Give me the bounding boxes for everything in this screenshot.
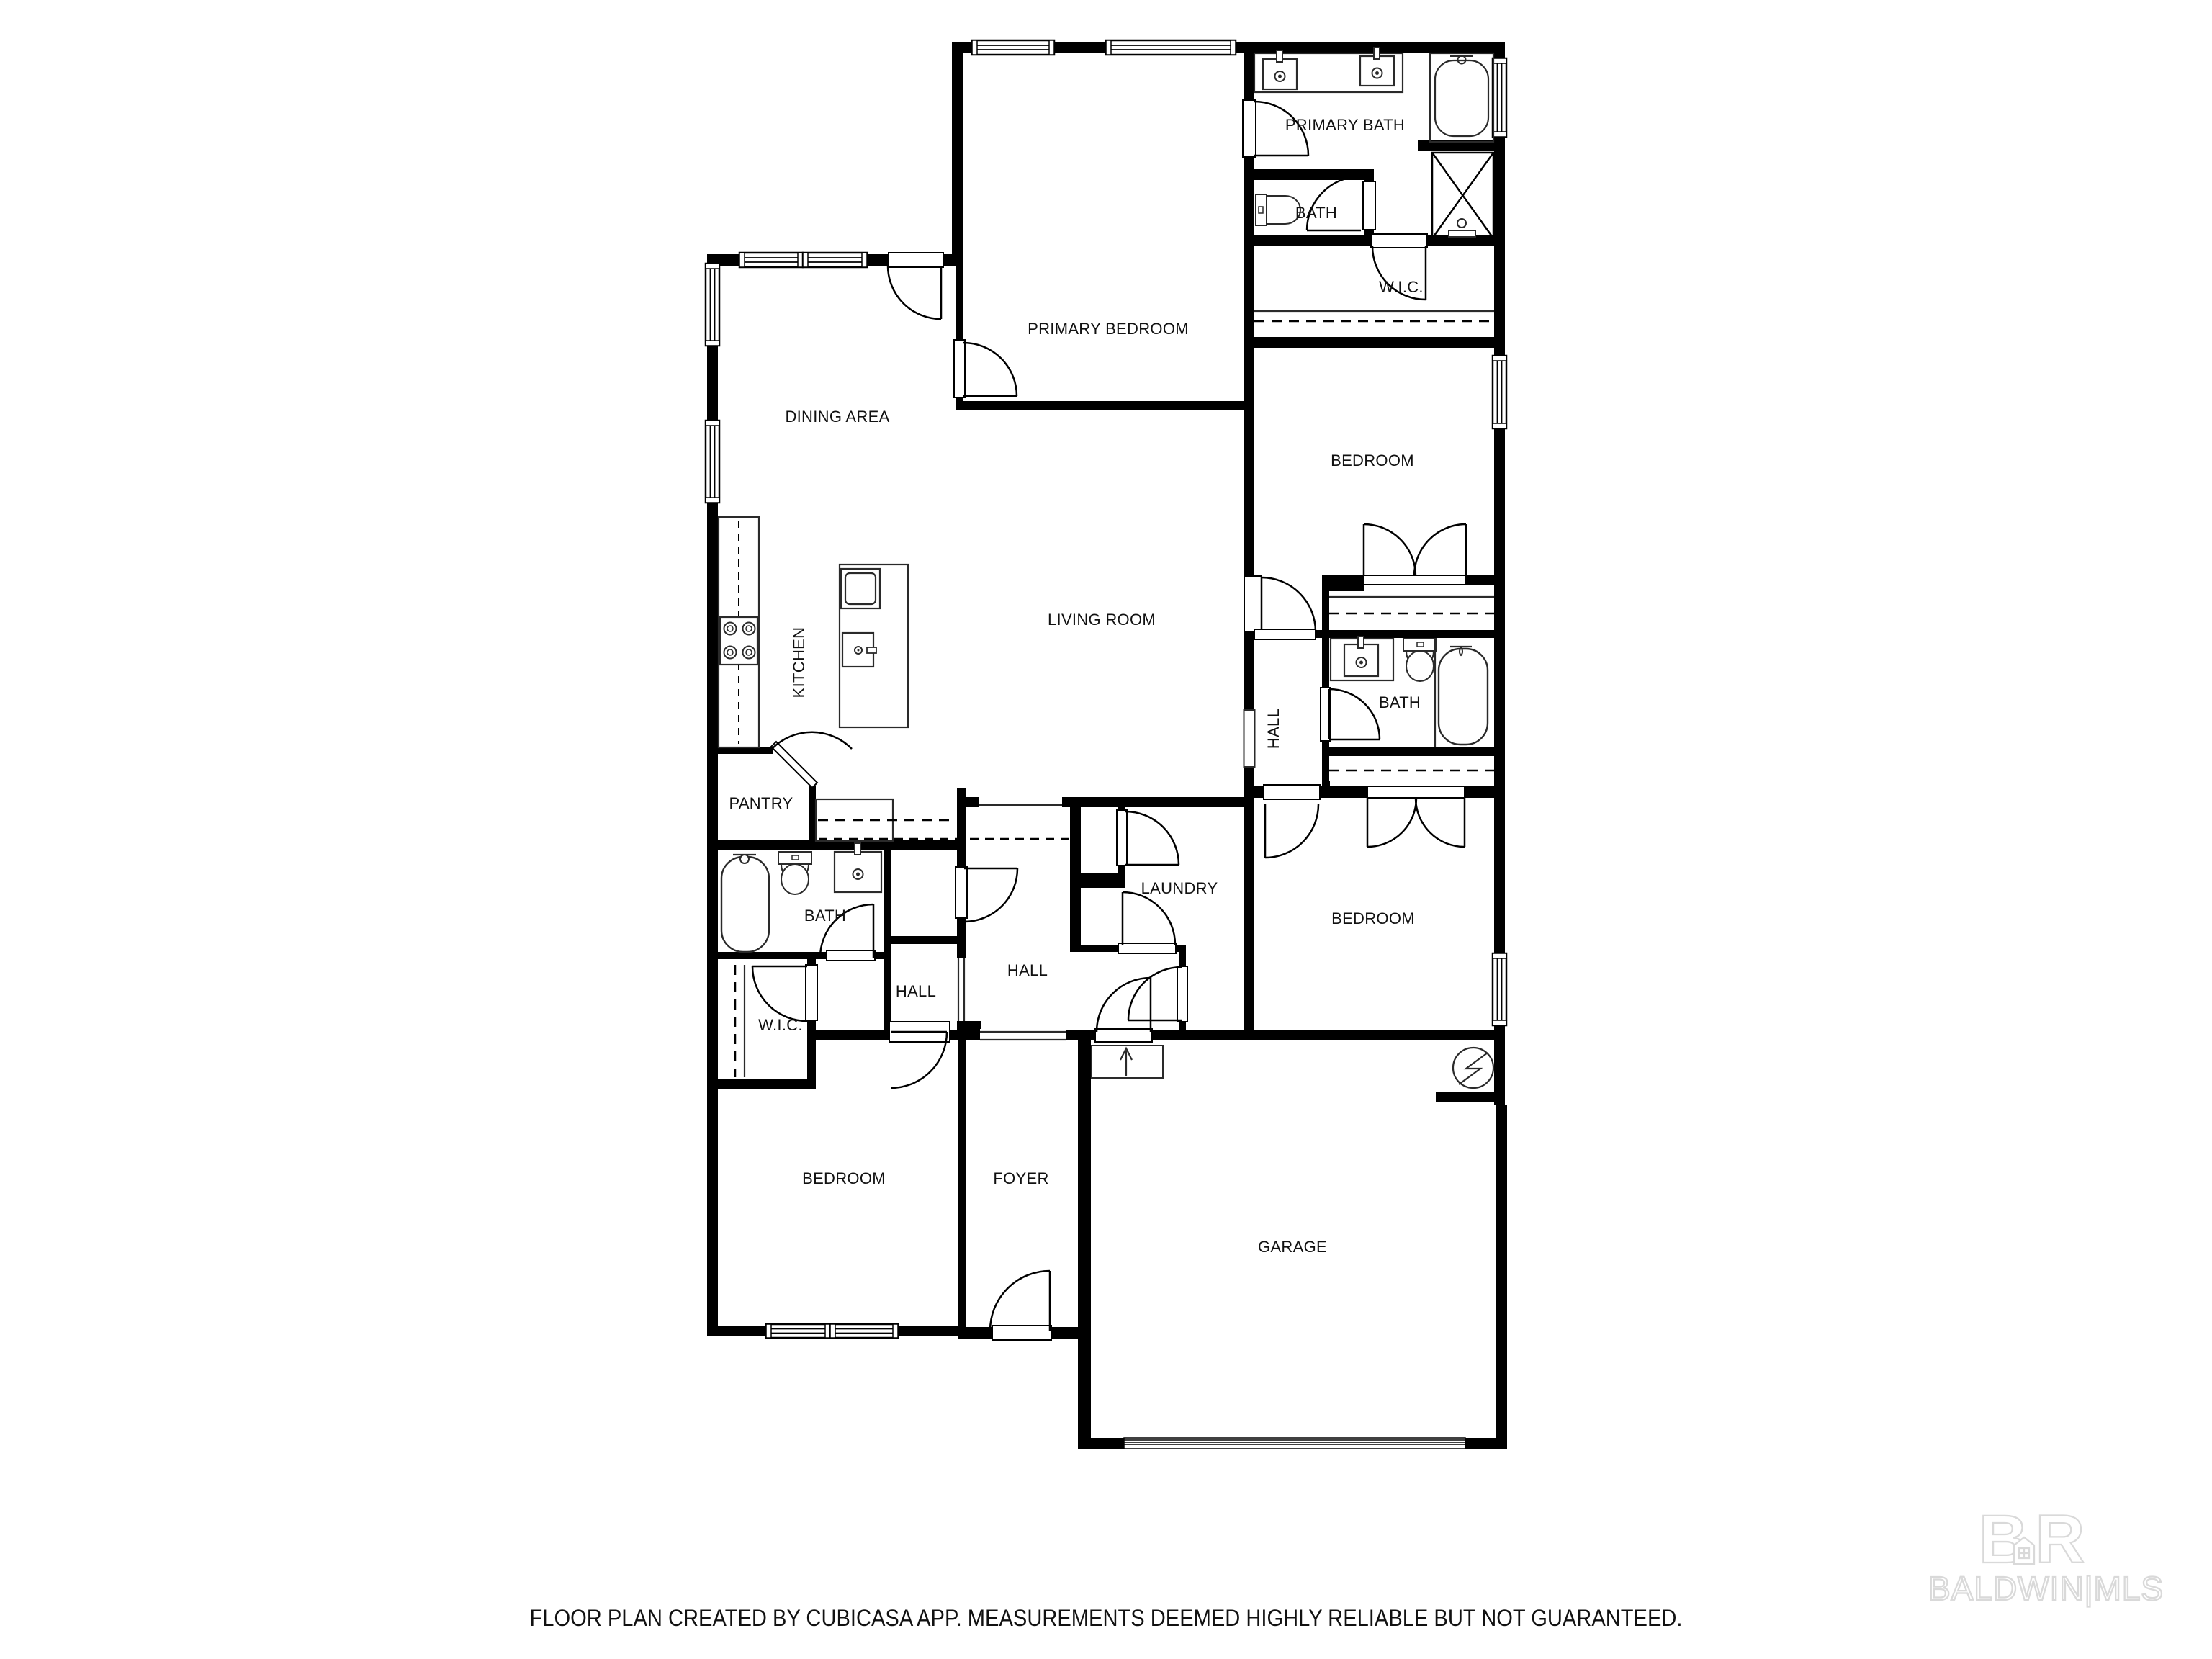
svg-text:W.I.C.: W.I.C. <box>1379 278 1424 296</box>
svg-text:FOYER: FOYER <box>993 1169 1048 1187</box>
svg-text:GARAGE: GARAGE <box>1258 1238 1327 1256</box>
svg-text:BATH: BATH <box>1379 693 1421 711</box>
svg-text:BATH: BATH <box>804 907 846 925</box>
svg-text:FLOOR PLAN CREATED BY CUBICASA: FLOOR PLAN CREATED BY CUBICASA APP. MEAS… <box>530 1605 1683 1631</box>
svg-text:LAUNDRY: LAUNDRY <box>1141 879 1218 897</box>
svg-text:W.I.C.: W.I.C. <box>758 1016 803 1034</box>
svg-text:BR: BR <box>1979 1501 2092 1578</box>
svg-text:HALL: HALL <box>1264 709 1282 749</box>
svg-text:BATH: BATH <box>1295 204 1337 222</box>
svg-text:LIVING ROOM: LIVING ROOM <box>1048 611 1156 629</box>
svg-text:PRIMARY BATH: PRIMARY BATH <box>1285 116 1405 134</box>
svg-text:DINING AREA: DINING AREA <box>785 408 889 426</box>
svg-text:BEDROOM: BEDROOM <box>802 1169 886 1187</box>
svg-text:BEDROOM: BEDROOM <box>1331 451 1414 469</box>
svg-text:HALL: HALL <box>896 982 936 1000</box>
svg-text:HALL: HALL <box>1007 961 1048 979</box>
svg-text:KITCHEN: KITCHEN <box>790 627 808 698</box>
svg-text:BEDROOM: BEDROOM <box>1331 909 1415 927</box>
svg-text:PANTRY: PANTRY <box>729 794 793 812</box>
svg-text:PRIMARY BEDROOM: PRIMARY BEDROOM <box>1028 320 1189 338</box>
svg-text:BALDWIN|MLS: BALDWIN|MLS <box>1928 1570 2164 1607</box>
